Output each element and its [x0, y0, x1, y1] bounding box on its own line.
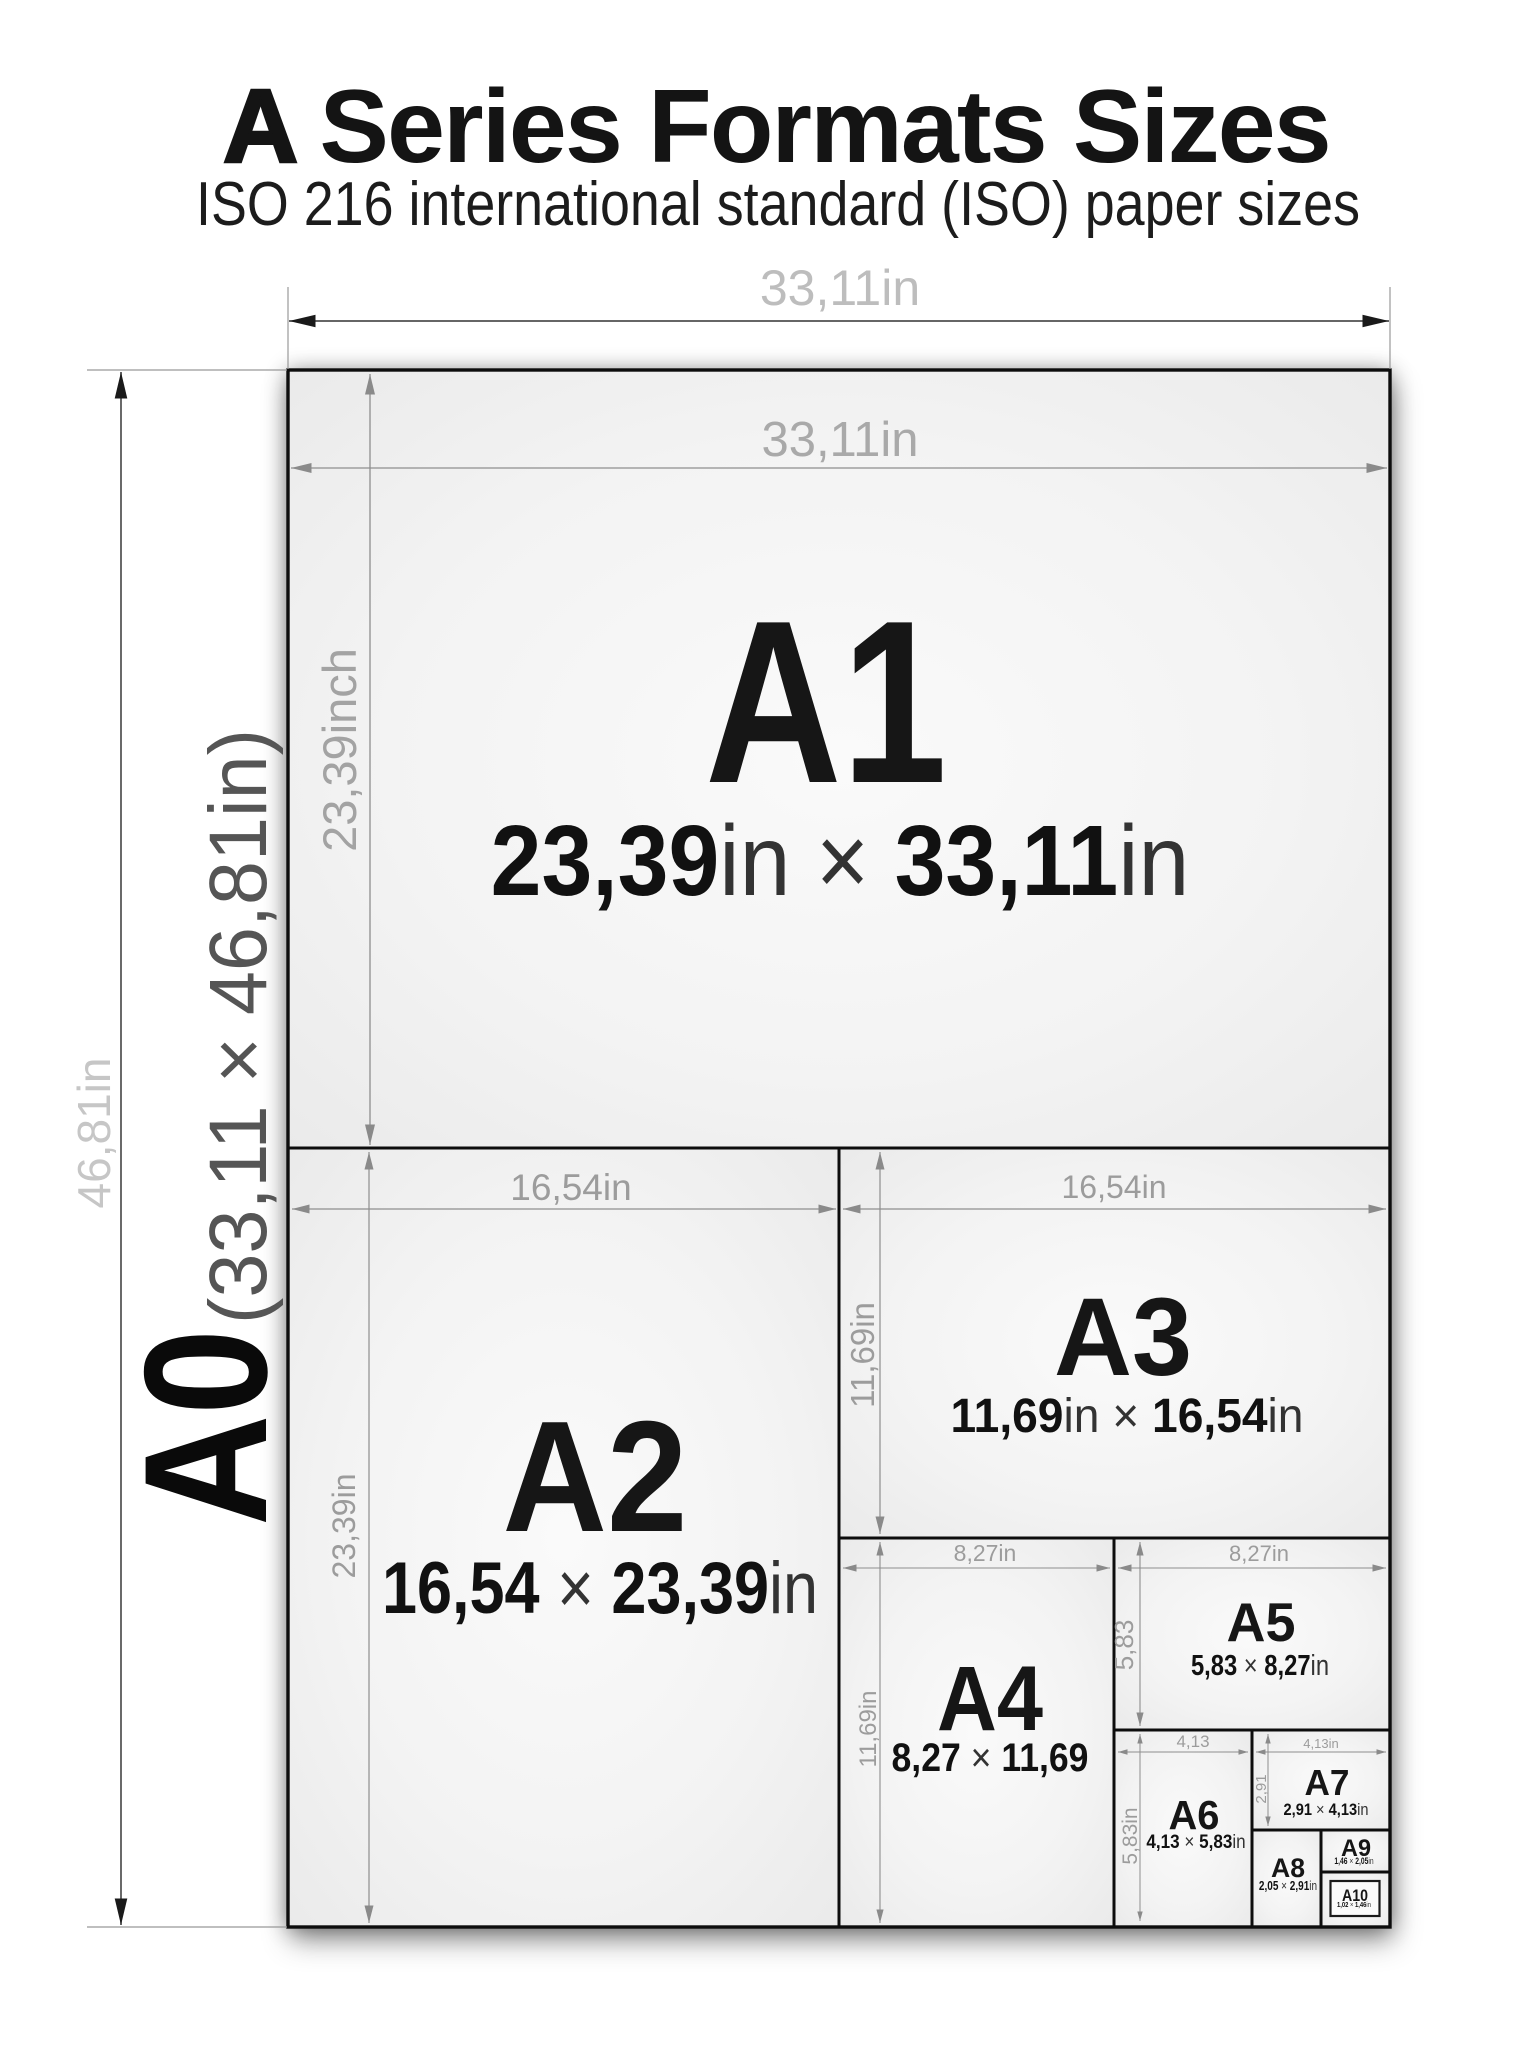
svg-text:2,91 × 4,13in: 2,91 × 4,13in — [1284, 1801, 1369, 1819]
svg-text:A3: A3 — [1054, 1276, 1192, 1399]
svg-text:A7: A7 — [1305, 1762, 1350, 1803]
svg-text:33,11in: 33,11in — [760, 260, 920, 316]
svg-text:5,83in: 5,83in — [1119, 1807, 1142, 1864]
svg-text:11,69in: 11,69in — [844, 1302, 881, 1408]
svg-text:46,81in: 46,81in — [68, 1058, 120, 1209]
svg-text:5,83: 5,83 — [1109, 1620, 1139, 1671]
svg-text:23,39in: 23,39in — [326, 1474, 362, 1579]
svg-text:4,13: 4,13 — [1176, 1732, 1209, 1751]
svg-text:A4: A4 — [937, 1648, 1043, 1750]
svg-text:A5: A5 — [1227, 1591, 1296, 1653]
svg-text:A1: A1 — [705, 573, 947, 832]
svg-text:(33,11 × 46,81in): (33,11 × 46,81in) — [193, 729, 284, 1324]
svg-text:16,54in: 16,54in — [1062, 1169, 1167, 1205]
svg-text:8,27in: 8,27in — [954, 1540, 1017, 1566]
svg-text:33,11in: 33,11in — [761, 413, 918, 467]
svg-text:A2: A2 — [503, 1389, 688, 1565]
svg-text:23,39in × 33,11in: 23,39in × 33,11in — [491, 805, 1190, 917]
svg-text:11,69in × 16,54in: 11,69in × 16,54in — [951, 1388, 1304, 1442]
svg-text:1,02 × 1,46in: 1,02 × 1,46in — [1337, 1901, 1371, 1909]
svg-text:16,54in: 16,54in — [510, 1167, 631, 1208]
svg-text:8,27in: 8,27in — [1229, 1541, 1289, 1566]
svg-text:4,13in: 4,13in — [1303, 1736, 1338, 1751]
svg-text:11,69in: 11,69in — [855, 1691, 882, 1768]
svg-text:2,05 × 2,91in: 2,05 × 2,91in — [1259, 1879, 1317, 1894]
svg-text:4,13 × 5,83in: 4,13 × 5,83in — [1146, 1831, 1245, 1852]
svg-text:A0: A0 — [109, 1329, 304, 1526]
svg-text:1,46 × 2,05in: 1,46 × 2,05in — [1334, 1856, 1373, 1866]
svg-text:ISO 216 international standard: ISO 216 international standard (ISO) pap… — [196, 170, 1360, 239]
svg-text:23,39inch: 23,39inch — [313, 648, 366, 852]
svg-text:A Series Formats Sizes: A Series Formats Sizes — [223, 69, 1330, 185]
svg-text:5,83 × 8,27in: 5,83 × 8,27in — [1191, 1649, 1329, 1682]
svg-text:16,54 × 23,39in: 16,54 × 23,39in — [382, 1548, 818, 1629]
svg-text:8,27 × 11,69: 8,27 × 11,69 — [892, 1736, 1089, 1780]
svg-text:2,91: 2,91 — [1253, 1774, 1270, 1803]
